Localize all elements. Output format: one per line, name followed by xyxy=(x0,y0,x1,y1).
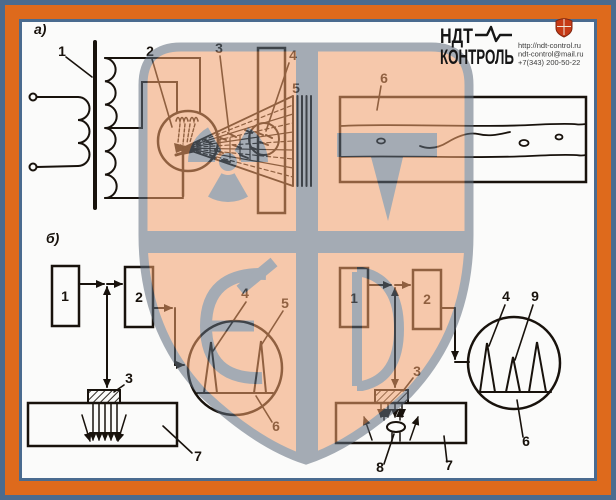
label-block2: 2 xyxy=(135,289,143,305)
label-defect-echo: 9 xyxy=(531,288,539,304)
ndt-figure-page: а) xyxy=(0,0,616,500)
label-initial-pulse: 4 xyxy=(502,288,510,304)
label-transformer: 1 xyxy=(58,43,66,59)
figure-canvas: а) xyxy=(0,0,616,500)
logo-name-line1: НДТ xyxy=(440,25,473,48)
caption-a: а) xyxy=(34,21,47,37)
caption-b: б) xyxy=(46,230,60,246)
label-workpiece: 7 xyxy=(194,448,202,464)
logo-name-line2: КОНТРОЛЬ xyxy=(440,46,514,69)
label-block1: 1 xyxy=(61,288,69,304)
label-transducer: 3 xyxy=(125,370,133,386)
label-defect: 8 xyxy=(376,459,384,475)
phone-text: +7(343) 200-50-22 xyxy=(518,58,580,67)
